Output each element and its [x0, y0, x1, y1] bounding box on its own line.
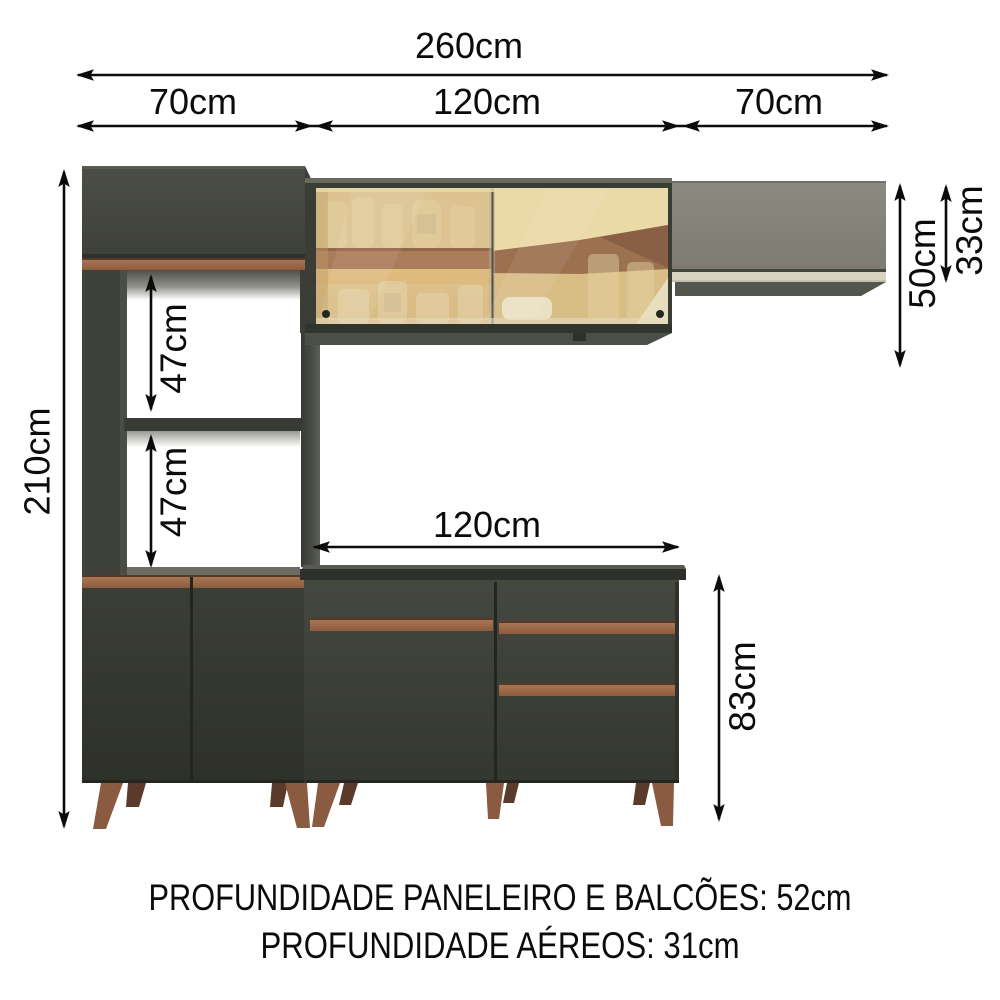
svg-text:47cm: 47cm: [153, 447, 194, 537]
svg-text:120cm: 120cm: [433, 81, 541, 122]
svg-text:83cm: 83cm: [722, 641, 763, 731]
svg-text:120cm: 120cm: [433, 504, 541, 545]
svg-text:33cm: 33cm: [949, 185, 990, 275]
svg-text:50cm: 50cm: [902, 218, 943, 308]
svg-text:70cm: 70cm: [149, 81, 237, 122]
svg-text:260cm: 260cm: [415, 25, 523, 66]
svg-text:PROFUNDIDADE AÉREOS: 31cm: PROFUNDIDADE AÉREOS: 31cm: [261, 925, 740, 966]
svg-text:210cm: 210cm: [17, 407, 58, 515]
svg-text:47cm: 47cm: [153, 303, 194, 393]
svg-text:PROFUNDIDADE PANELEIRO E BALCÕ: PROFUNDIDADE PANELEIRO E BALCÕES: 52cm: [149, 877, 852, 918]
svg-text:70cm: 70cm: [735, 81, 823, 122]
